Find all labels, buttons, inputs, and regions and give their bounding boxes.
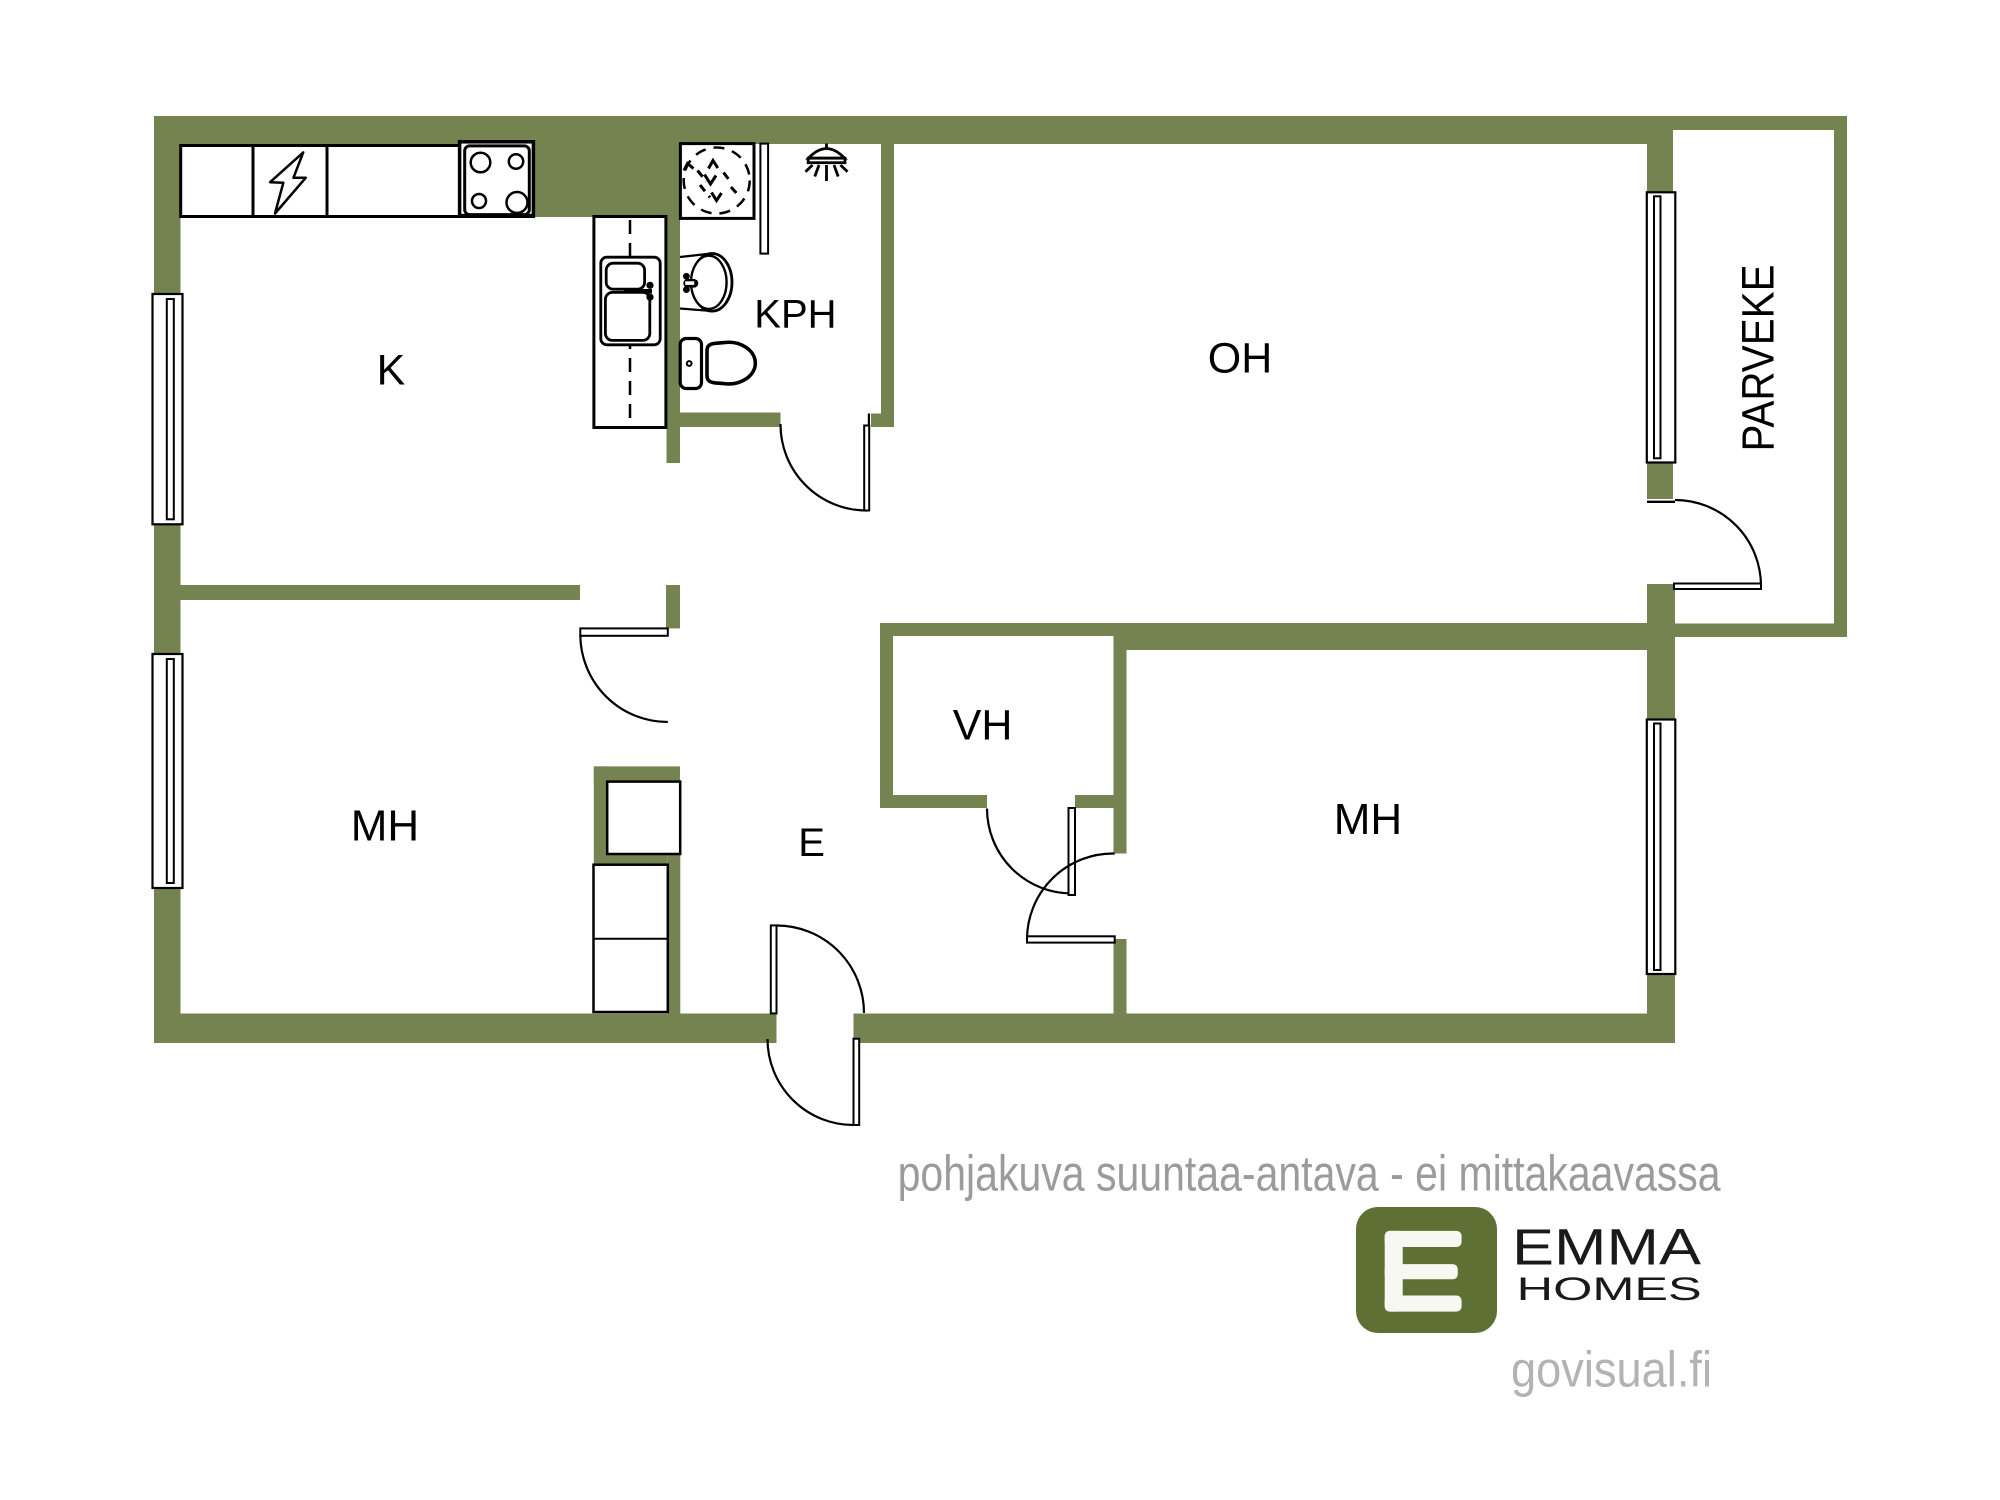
svg-text:HOMES: HOMES (1517, 1271, 1702, 1307)
svg-text:govisual.fi: govisual.fi (1511, 1342, 1712, 1398)
svg-text:MH: MH (1334, 795, 1402, 844)
svg-text:VH: VH (953, 702, 1013, 750)
svg-text:KPH: KPH (754, 293, 836, 337)
svg-text:EMMA: EMMA (1512, 1218, 1701, 1275)
svg-text:PARVEKE: PARVEKE (1733, 265, 1784, 452)
svg-text:MH: MH (351, 802, 419, 851)
svg-text:E: E (798, 821, 825, 865)
svg-text:OH: OH (1208, 335, 1273, 383)
svg-text:pohjakuva suuntaa-antava - ei: pohjakuva suuntaa-antava - ei mittakaava… (898, 1146, 1721, 1202)
svg-text:K: K (377, 347, 406, 395)
